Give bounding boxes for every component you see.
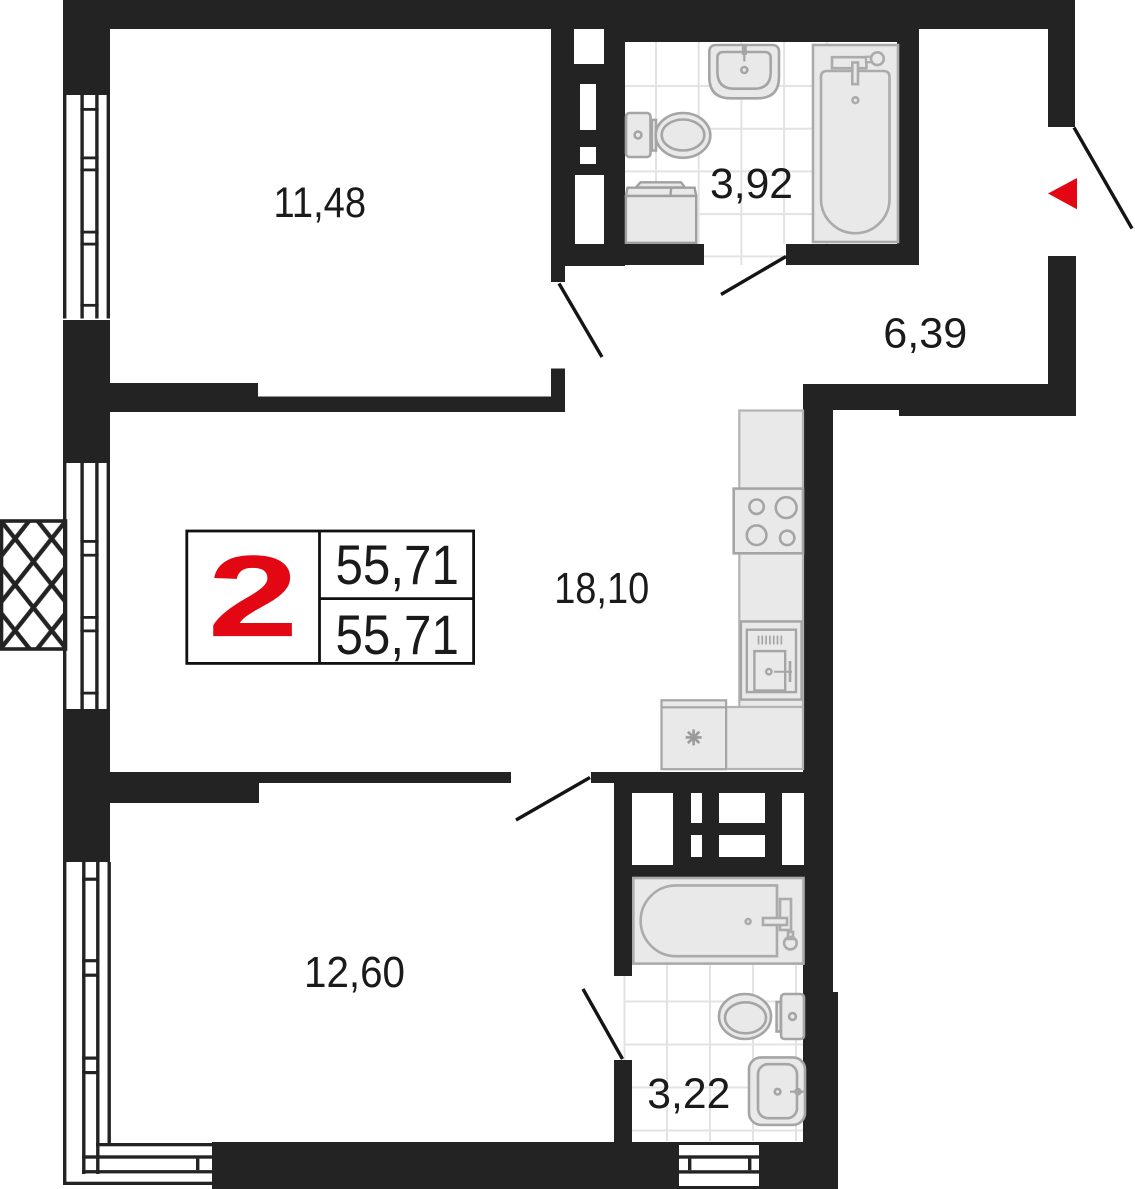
svg-text:11,48: 11,48 — [274, 179, 367, 227]
svg-text:3,92: 3,92 — [710, 161, 793, 208]
svg-text:55,71: 55,71 — [335, 534, 459, 596]
svg-text:2: 2 — [208, 531, 299, 660]
svg-text:6,39: 6,39 — [883, 310, 967, 358]
svg-text:3,22: 3,22 — [647, 1071, 730, 1118]
svg-text:12,60: 12,60 — [304, 949, 405, 997]
svg-text:55,71: 55,71 — [335, 604, 459, 666]
svg-text:18,10: 18,10 — [554, 565, 649, 613]
